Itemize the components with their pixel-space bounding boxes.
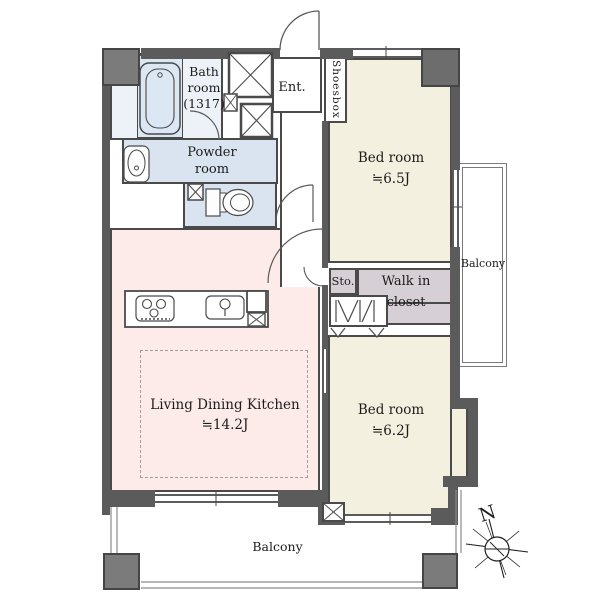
compass-north-label: N xyxy=(476,501,499,527)
powder-room-label: Powder room xyxy=(162,144,262,178)
bathroom-label: Bath room (1317) xyxy=(180,64,228,112)
entrance-door-icon xyxy=(280,11,319,50)
toilet-icon xyxy=(188,184,253,216)
bedroom1-door-icon xyxy=(276,185,313,222)
entrance-label: Ent. xyxy=(267,79,317,96)
storage-label: Sto. xyxy=(328,273,358,290)
compass-icon: N xyxy=(466,501,528,578)
shoesbox-label: Shoesbox xyxy=(327,56,345,122)
ldk-label: Living Dining Kitchen ≒14.2J xyxy=(130,395,320,435)
bedroom1-label: Bed room ≒6.5J xyxy=(330,148,452,190)
balcony-right-label: Balcony xyxy=(456,255,510,272)
bath-door-icon xyxy=(190,111,219,140)
bedroom2-label: Bed room ≒6.2J xyxy=(330,400,452,442)
balcony-bottom-label: Balcony xyxy=(230,538,325,555)
washbasin-icon xyxy=(124,146,149,182)
floor-plan: N Bath room (1317) Powder room Ent. Shoe… xyxy=(0,0,600,600)
shaft-x-icon xyxy=(224,53,344,521)
walk-in-closet-label: Walk in closet xyxy=(360,271,452,313)
bathtub-icon xyxy=(140,63,180,134)
ldk-door-icon xyxy=(268,229,322,283)
storage-door-icon xyxy=(304,267,323,286)
